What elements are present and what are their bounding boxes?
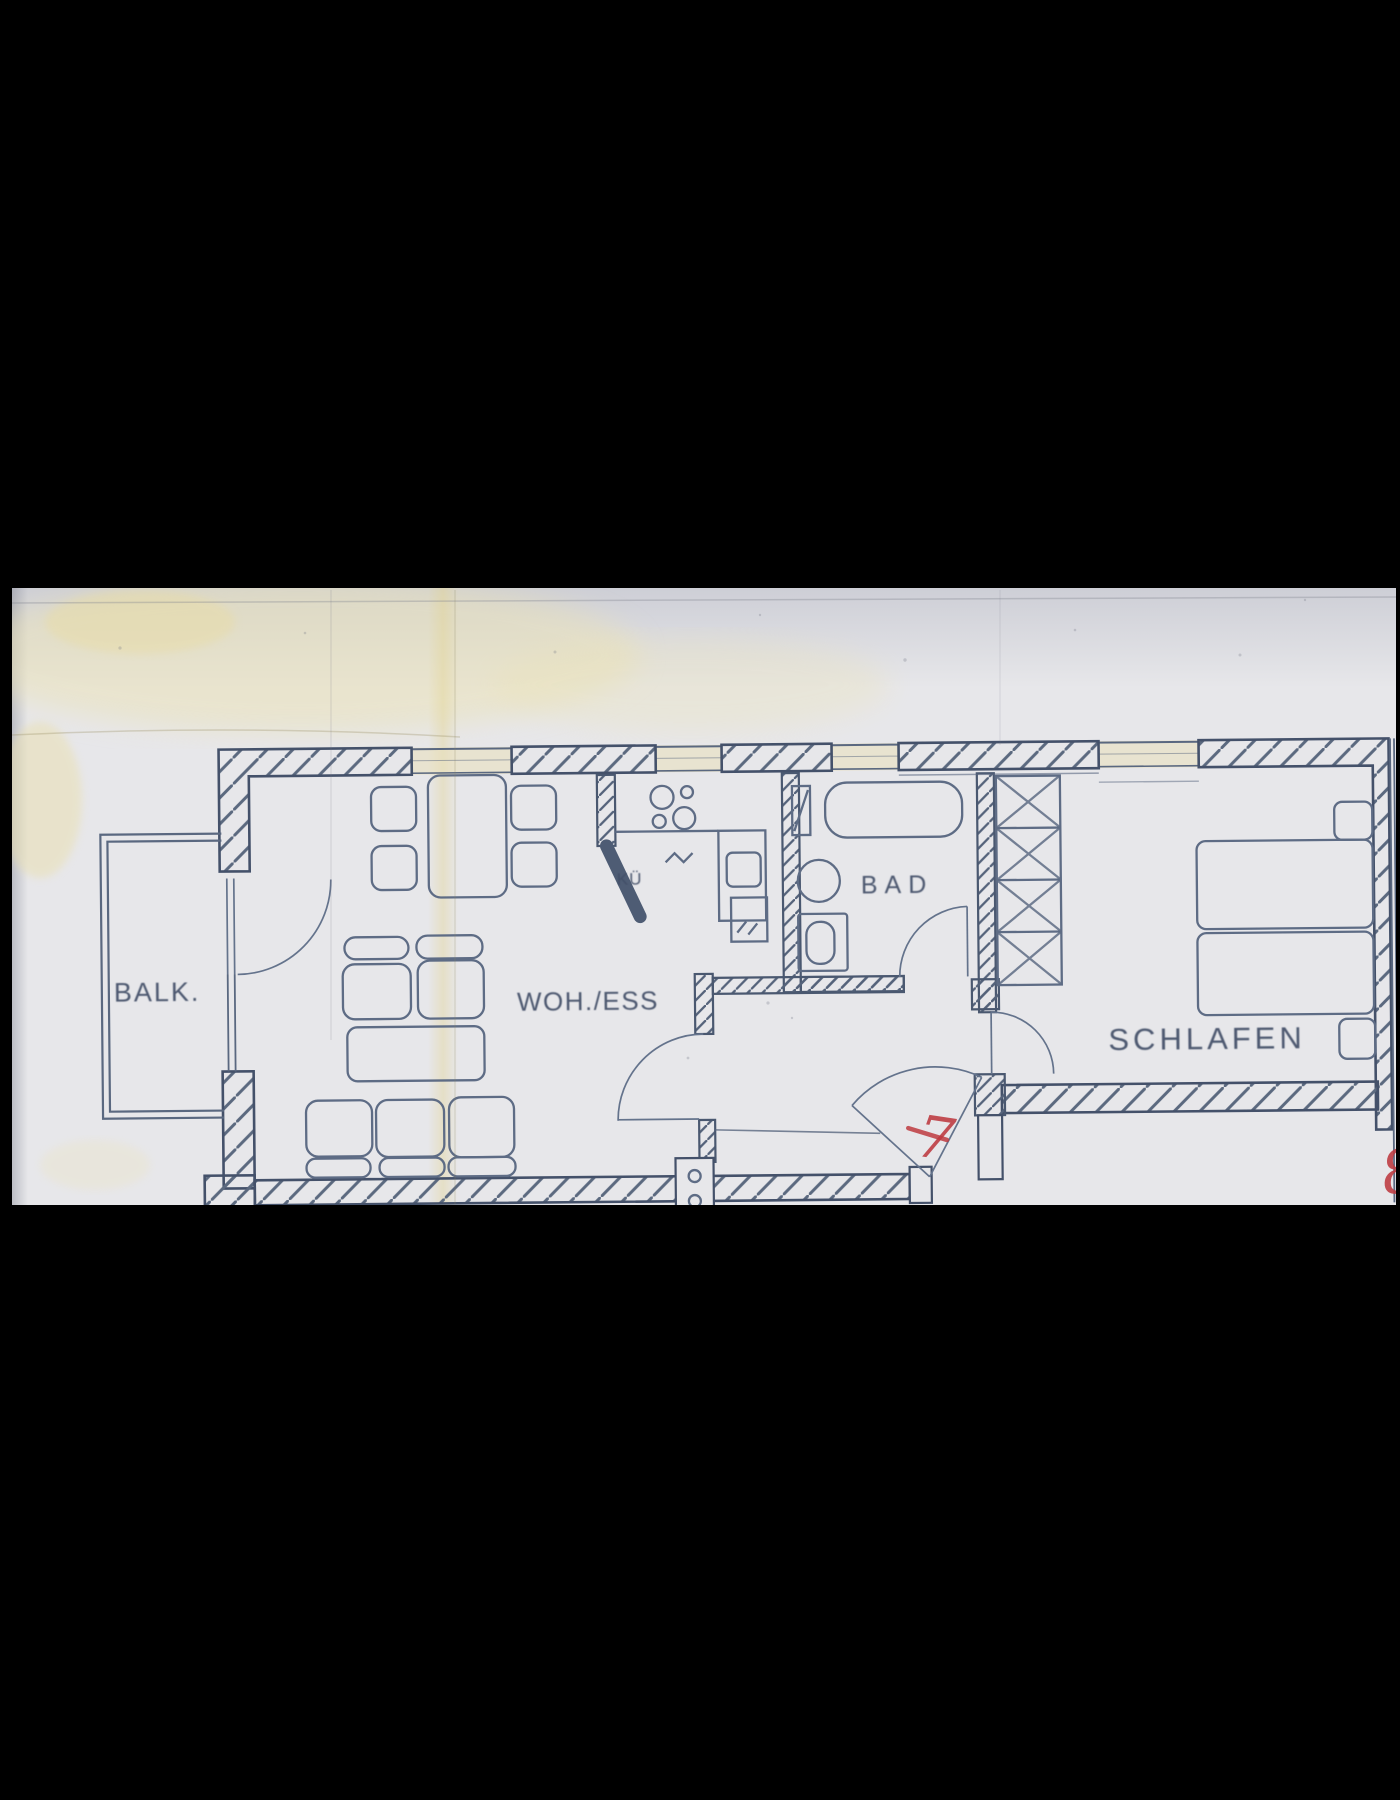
room-label-living: WOH./ESS xyxy=(517,985,659,1016)
utility-shaft xyxy=(675,1158,713,1208)
screenshot-root: BALK. WOH./ESS KÜ BAD SCHLAFEN 7 8 xyxy=(0,0,1400,1800)
wall-south-living xyxy=(255,1174,910,1205)
wall-living-hall-lower xyxy=(699,1120,715,1162)
wall-west-lower xyxy=(223,1071,255,1188)
room-label-balcony: BALK. xyxy=(114,977,201,1008)
letterbox-top xyxy=(0,0,1400,588)
wall-south-bedroom xyxy=(1002,1082,1378,1114)
floor-plan-scan: BALK. WOH./ESS KÜ BAD SCHLAFEN 7 8 xyxy=(0,0,1400,1800)
letterbox-left xyxy=(0,0,12,1800)
wall-hall-bedroom xyxy=(977,773,996,1012)
wall-end-cap xyxy=(910,1167,932,1203)
room-label-kitchen: KÜ xyxy=(617,870,643,889)
scanned-page: BALK. WOH./ESS KÜ BAD SCHLAFEN 7 8 xyxy=(0,577,1400,1222)
room-label-bath: BAD xyxy=(861,871,934,900)
wall-kitchen-divider xyxy=(597,775,616,846)
wall-living-hall-upper xyxy=(695,974,714,1034)
letterbox-right xyxy=(1396,0,1400,1800)
wall-hall-north xyxy=(713,976,904,994)
letterbox-bottom xyxy=(0,1205,1400,1800)
room-label-bedroom: SCHLAFEN xyxy=(1108,1020,1306,1057)
